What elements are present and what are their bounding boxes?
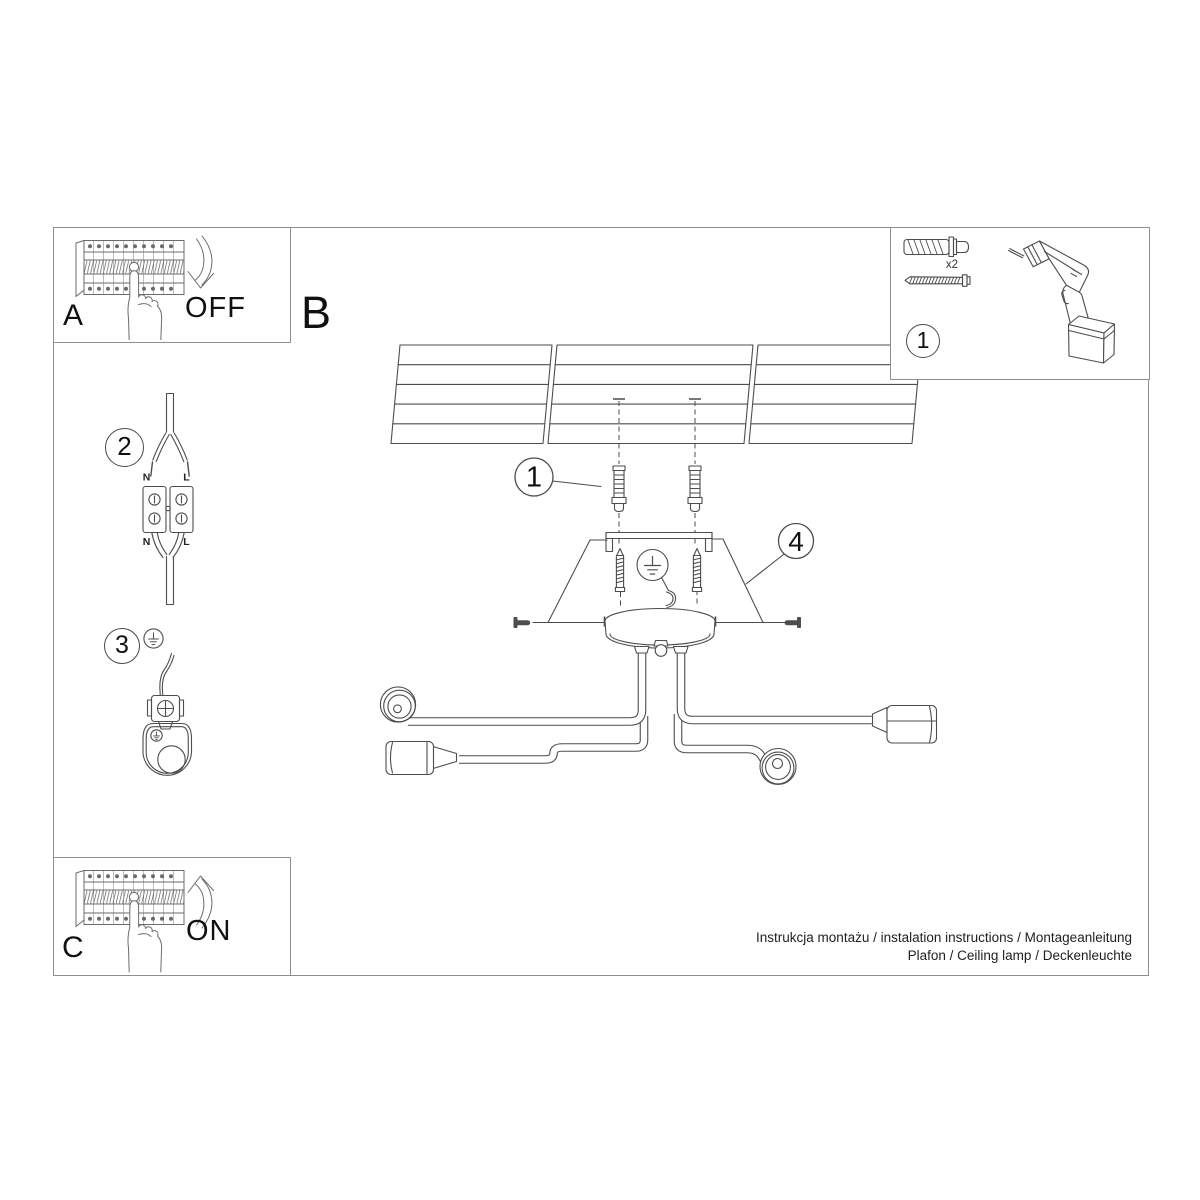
off-label: OFF bbox=[185, 294, 246, 323]
drill-icon bbox=[1009, 241, 1115, 363]
step2-number: 2 bbox=[105, 428, 144, 467]
arrow-down-icon bbox=[188, 236, 214, 288]
section-c-label: C bbox=[62, 933, 84, 963]
screw-icon bbox=[905, 275, 970, 287]
dowel-quantity-label: x2 bbox=[937, 260, 967, 272]
breaker-off-illustration bbox=[54, 228, 288, 340]
footer-line-instructions: Instrukcja montażu / instalation instruc… bbox=[700, 929, 1132, 947]
circuit-breaker-icon bbox=[76, 241, 184, 341]
on-label: ON bbox=[186, 917, 232, 946]
section-a-label: A bbox=[63, 301, 83, 331]
section-b-label: B bbox=[301, 290, 331, 335]
tools-required-box: x2 1 bbox=[890, 227, 1150, 380]
panel-c-power-on bbox=[53, 857, 291, 976]
footer-line-product: Plafon / Ceiling lamp / Deckenleuchte bbox=[700, 947, 1132, 965]
circuit-breaker-icon bbox=[76, 871, 184, 973]
panel-a-power-off bbox=[53, 227, 291, 343]
footer-text: Instrukcja montażu / instalation instruc… bbox=[700, 929, 1132, 964]
step3-number: 3 bbox=[104, 628, 140, 664]
tools-step-number: 1 bbox=[906, 324, 940, 358]
breaker-on-illustration bbox=[54, 858, 288, 973]
wall-plug-icon bbox=[904, 237, 969, 257]
installation-manual-page: N L N L bbox=[0, 0, 1200, 1200]
